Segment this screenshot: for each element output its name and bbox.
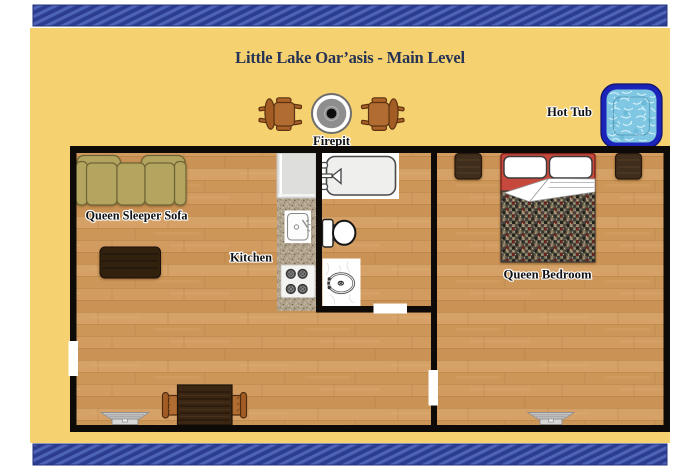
- svg-text:Kitchen: Kitchen: [230, 251, 272, 265]
- svg-text:Little Lake Oar’asis - Main Le: Little Lake Oar’asis - Main Level: [235, 48, 465, 67]
- svg-text:Queen Sleeper Sofa: Queen Sleeper Sofa: [86, 209, 189, 223]
- svg-text:Queen Bedroom: Queen Bedroom: [504, 267, 592, 282]
- svg-text:Hot Tub: Hot Tub: [547, 104, 592, 119]
- svg-text:Firepit: Firepit: [313, 133, 351, 148]
